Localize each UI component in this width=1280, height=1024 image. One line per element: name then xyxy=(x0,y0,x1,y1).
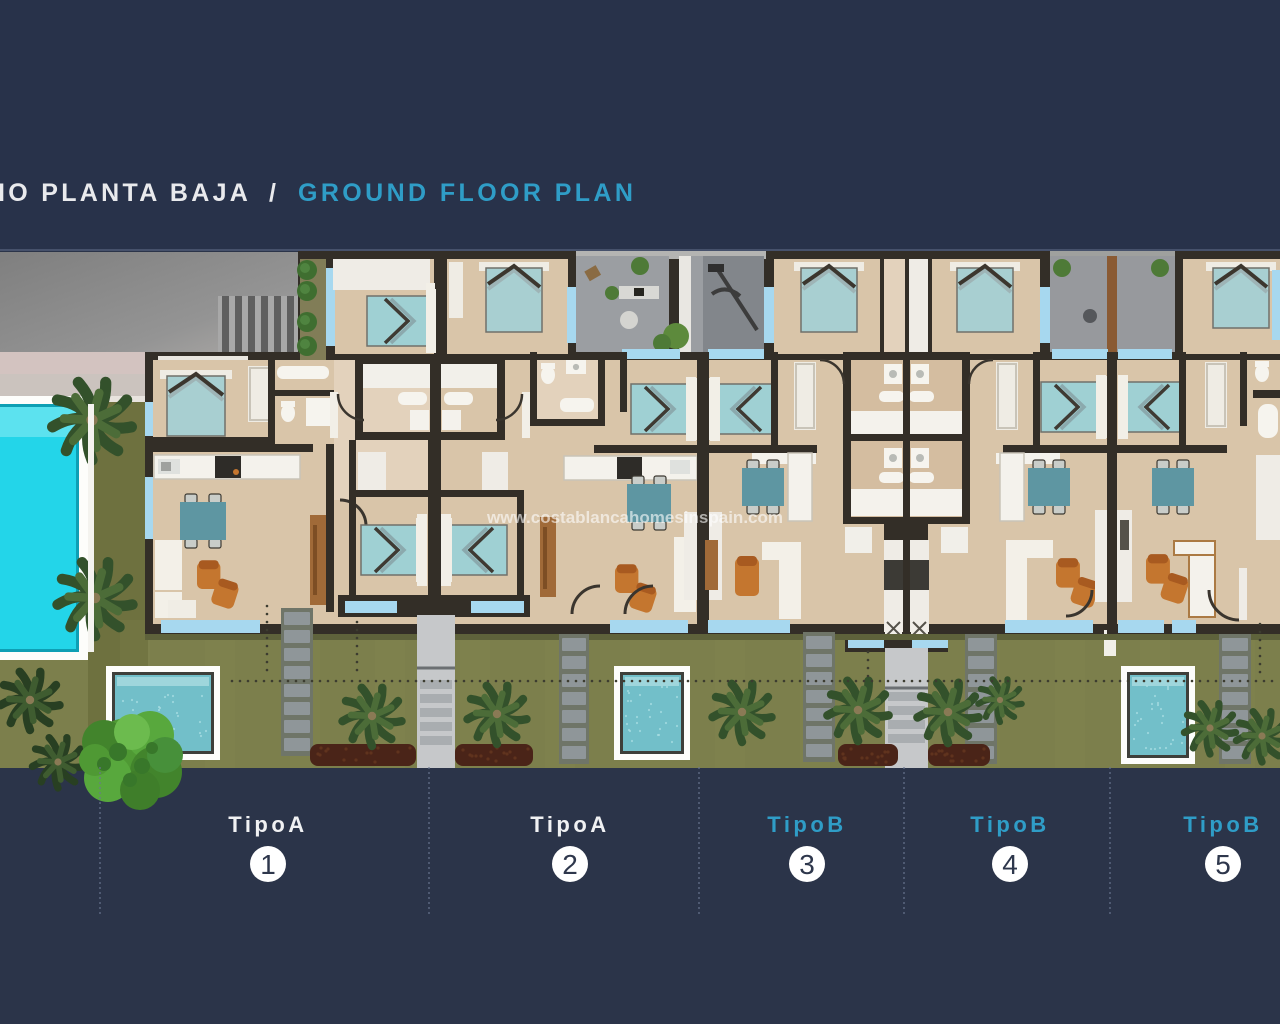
svg-text:TipoB: TipoB xyxy=(1183,812,1262,837)
svg-text:TipoA: TipoA xyxy=(228,812,307,837)
svg-text:TipoB: TipoB xyxy=(767,812,846,837)
svg-text:1: 1 xyxy=(260,849,276,880)
svg-text:2: 2 xyxy=(562,849,578,880)
svg-text:5: 5 xyxy=(1215,849,1231,880)
svg-text:GROUND FLOOR PLAN: GROUND FLOOR PLAN xyxy=(298,179,636,207)
svg-text:TipoB: TipoB xyxy=(970,812,1049,837)
svg-text:3: 3 xyxy=(799,849,815,880)
svg-text:4: 4 xyxy=(1002,849,1018,880)
svg-text:TipoA: TipoA xyxy=(530,812,609,837)
svg-text:www.costablancahomesinspain.co: www.costablancahomesinspain.com xyxy=(486,508,783,527)
svg-text:IO PLANTA BAJA: IO PLANTA BAJA xyxy=(0,179,251,207)
svg-text:/: / xyxy=(269,179,276,207)
